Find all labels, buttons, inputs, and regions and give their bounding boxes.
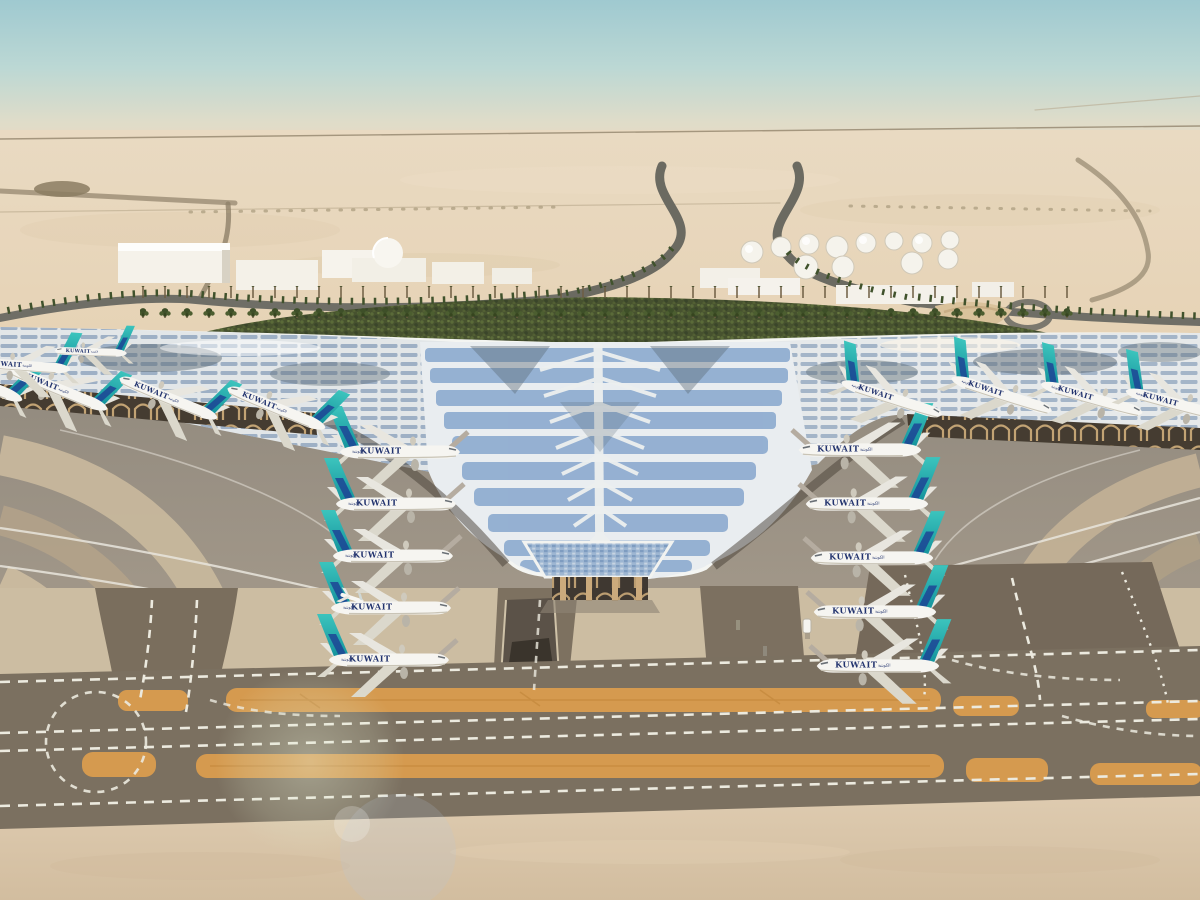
- bollard: [736, 620, 740, 630]
- sky: [0, 0, 1200, 152]
- bollard: [763, 646, 767, 656]
- airport-rendering-scene: KUWAIT الكويتية الكويتية KUWAIT: [0, 0, 1200, 900]
- glass-mosaic-facade: [524, 542, 672, 577]
- palm-tree-row: [140, 286, 1080, 318]
- warehouse: [236, 260, 318, 290]
- warehouse: [432, 262, 484, 284]
- entrance-shadow: [540, 600, 660, 613]
- vehicle-shadow: [805, 633, 810, 639]
- service-vehicle: [803, 619, 811, 633]
- warehouse: [492, 268, 532, 284]
- left-interchange: [34, 181, 90, 197]
- rendering-canvas: KUWAIT الكويتية الكويتية KUWAIT: [0, 0, 1200, 900]
